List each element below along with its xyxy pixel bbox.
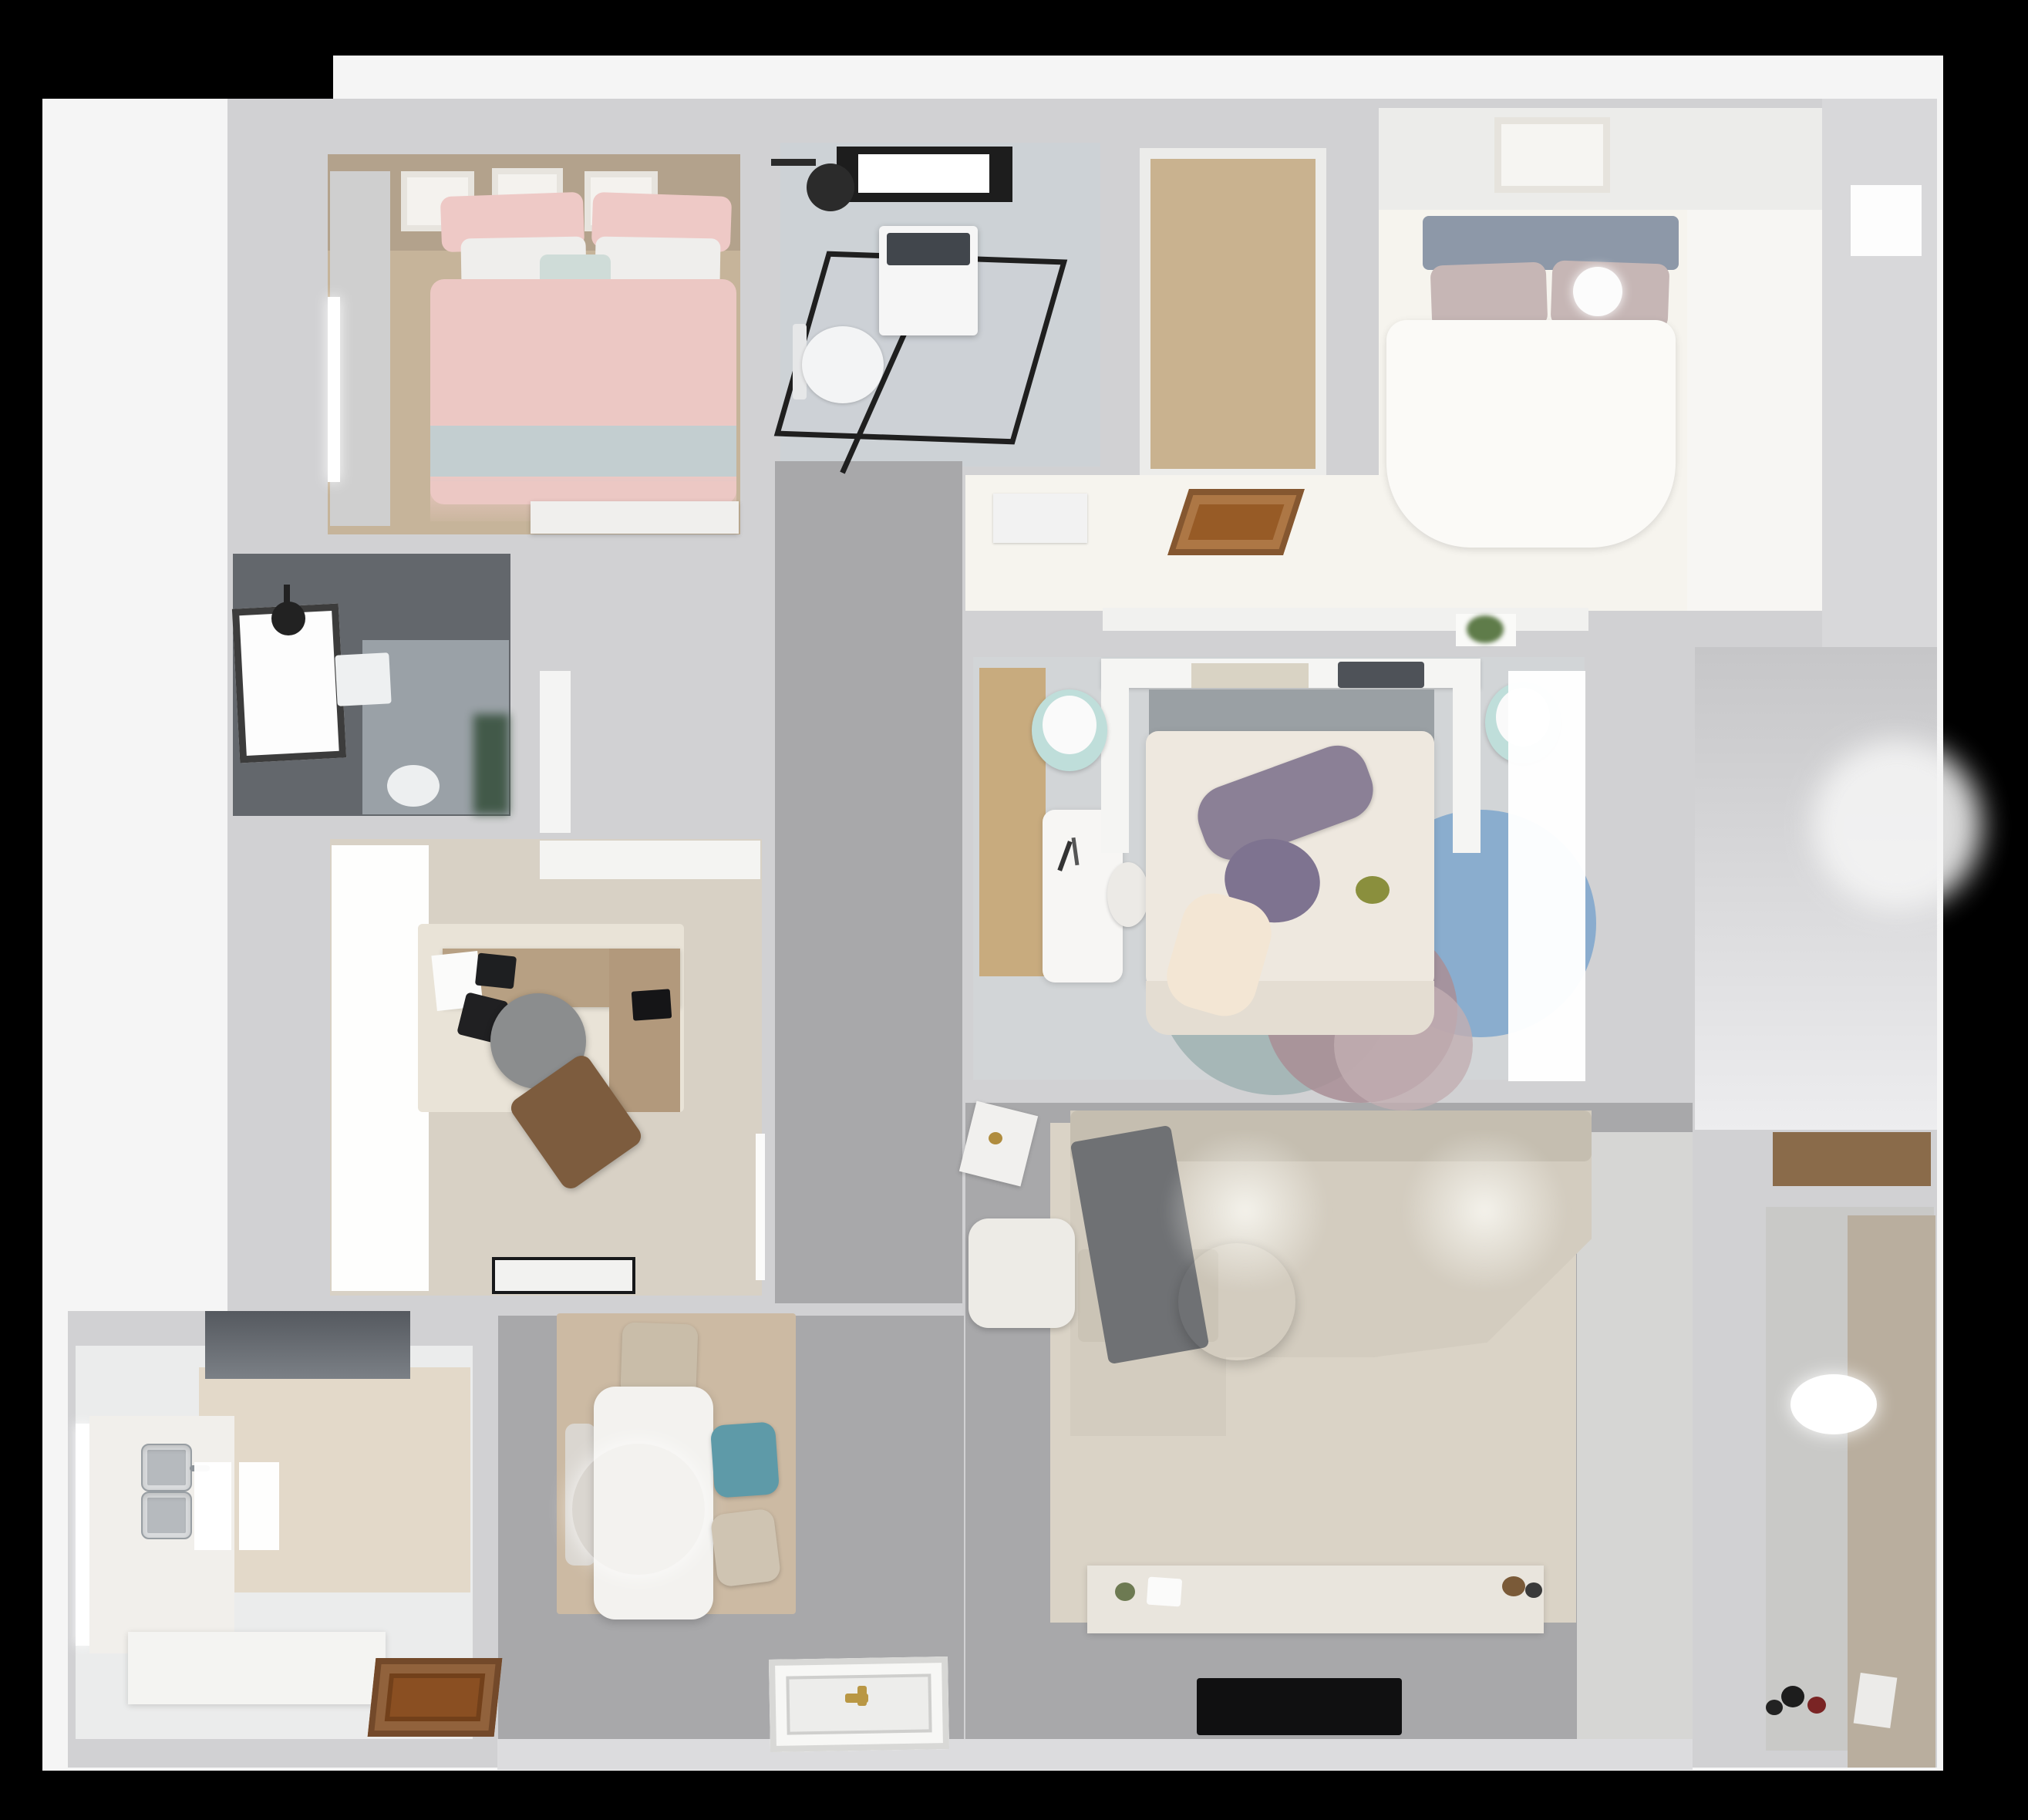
window-kitchen [76,1424,89,1646]
chair-dining-beige [710,1508,782,1587]
console-plant [1115,1582,1135,1601]
tv-panel [1197,1678,1402,1735]
wardrobe-slatted [1687,210,1822,611]
plant-green [1467,615,1504,643]
washing-machine-panel [887,233,970,265]
balcony-toy-3 [1766,1700,1783,1715]
picture-frame-white-bedroom [1494,117,1610,193]
toilet-bath [802,326,884,403]
window-topright [1851,185,1922,256]
console-decor-1 [1502,1576,1525,1596]
door-white-corridor [540,671,571,833]
window-glow-study [756,1134,765,1280]
black-notch-topleft [0,0,333,99]
range-hood [205,1311,410,1379]
sink-bowl-2 [141,1491,192,1539]
monitor-desk [475,953,517,989]
box-on-shelf [1338,662,1424,688]
sink-bowl-1 [141,1444,192,1491]
headboard-shelf-left [1101,659,1129,853]
shower-head-dark [271,602,305,635]
toilet-dark-bath [387,765,440,807]
desk-study-return [609,949,680,1112]
balcony-light-oval [1791,1374,1877,1434]
deco-tile-strip [1577,1132,1693,1739]
coffee-table-round [1178,1243,1295,1360]
curtain-study [332,845,429,1291]
door-brown-kitchen [368,1658,503,1737]
dresser-bedroom-pink [531,501,739,534]
light-rect-2 [239,1462,279,1550]
books-on-shelf [1191,663,1309,688]
laptop-sideboard [632,989,672,1020]
chandelier-gold-2 [497,428,648,571]
headboard-shelf-right [1453,659,1481,853]
balcony-box [1854,1673,1898,1728]
utility-light-blob [1812,740,1982,910]
wardrobe-study-top [540,841,760,879]
bath-mat-white [335,652,391,706]
curtain-bedroom-center [1508,671,1585,1081]
shower-head [807,163,854,211]
window-pane-bath [858,154,989,193]
side-table-gold-dot [989,1132,1002,1144]
chandelier-gray [1469,362,1650,528]
wood-shelf-right [1773,1132,1931,1186]
wall-zone-topright [1822,99,1937,648]
doormat-study [492,1257,635,1294]
chair-dining-teal [710,1421,780,1498]
window-bedroom-pink [328,297,340,482]
plant-strip-green [473,714,509,814]
balcony-toy-1 [1781,1686,1804,1707]
chair-dining-top [620,1322,698,1394]
sprig-green-bed [1356,876,1390,904]
light-rect-1 [194,1462,231,1550]
entry-door-handle-2 [857,1686,867,1706]
island-kitchen [128,1632,386,1704]
bottom-wall-band [497,1739,1693,1770]
ceiling-glow-2 [1396,1134,1573,1288]
pendant-lamp-dining [572,1444,705,1575]
balcony-toy-2 [1807,1697,1826,1714]
shower-arm [771,159,816,166]
ac-vent [993,494,1087,543]
console-box [1147,1577,1182,1607]
closet-floor [1140,148,1326,480]
chair-desk-bedroom [1107,862,1149,927]
armchair-white [969,1218,1075,1328]
corridor-floor [775,461,962,1303]
floor-plan [0,0,2028,1820]
console-decor-2 [1525,1582,1542,1598]
sphere-lamp [1573,267,1622,316]
headboard-blue [1423,216,1679,270]
door-brown-closet [1167,489,1305,555]
stool-teal-left-top [1043,696,1097,754]
